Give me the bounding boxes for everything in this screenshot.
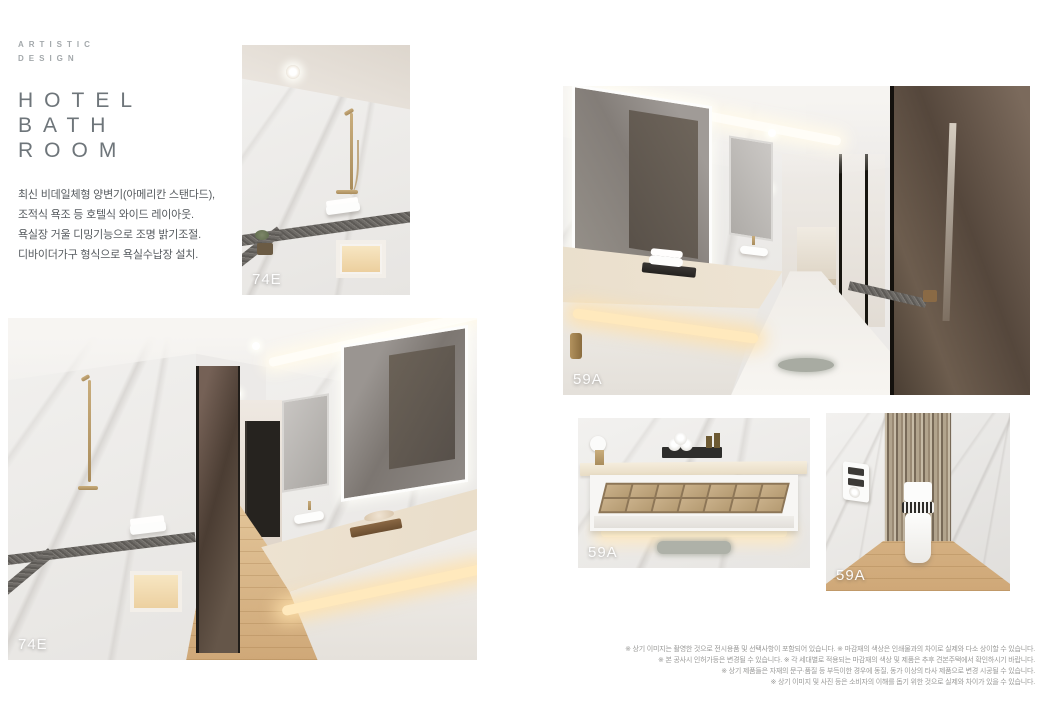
smoked-glass-door: [196, 366, 241, 653]
toilet-pattern-band: [902, 502, 933, 513]
shower-rail: [88, 380, 91, 483]
photo-label: 59A: [573, 371, 603, 388]
bath-rug: [657, 541, 731, 554]
panel-slot: [847, 467, 864, 476]
gold-vase: [570, 333, 582, 359]
bath-rug: [778, 358, 834, 372]
description-line: 욕실장 거울 디밍기능으로 조명 밝기조절.: [18, 225, 233, 245]
toilet-tank: [904, 482, 932, 502]
title-line-bath: BATH: [18, 113, 233, 138]
eyebrow-line-1: ARTISTIC: [18, 38, 233, 52]
description-line: 디바이더가구 형식으로 욕실수납장 설치.: [18, 245, 233, 265]
ceiling-spotlight: [252, 342, 260, 350]
vanity-cabinet: [590, 475, 799, 531]
wardrobe: [245, 421, 280, 537]
toilet-paper-roll: [848, 485, 859, 498]
wood-basket: [923, 290, 937, 302]
photo-label: 59A: [588, 544, 618, 561]
photo-drawer-59a: 59A: [578, 418, 810, 568]
disclaimer-line: ※ 상기 이미지는 촬영한 것으로 전시용품 및 선택사항이 포함되어 있습니다…: [625, 644, 1035, 655]
faucet: [308, 501, 311, 510]
ceiling-light: [286, 65, 300, 79]
mirror-cabinet: [282, 393, 329, 493]
rolled-towel: [674, 432, 687, 445]
eyebrow-line-2: DESIGN: [18, 52, 233, 66]
photo-bathroom-right-59a: 59A: [563, 86, 1030, 395]
smoked-glass-shower-wall: [890, 86, 1030, 395]
page-title: HOTEL BATH ROOM: [18, 88, 233, 163]
disclaimer-line: ※ 본 공사시 인허가등은 변경될 수 있습니다. ※ 각 세대별로 적용되는 …: [625, 655, 1035, 666]
panel-slot: [847, 478, 864, 487]
description-line: 조적식 욕조 등 호텔식 와이드 레이아웃.: [18, 205, 233, 225]
drawer-front: [594, 516, 794, 528]
shower-valve: [336, 190, 358, 194]
glass-door-frame: [865, 154, 868, 327]
photo-label: 74E: [18, 636, 48, 653]
photo-label: 59A: [836, 567, 866, 584]
description-text: 최신 비데일체형 양변기(아메리칸 스탠다드), 조적식 욕조 등 호텔식 와이…: [18, 185, 233, 265]
photo-bathroom-left-74e: 74E: [8, 318, 477, 660]
faucet: [752, 236, 755, 245]
disclaimer-text: ※ 상기 이미지는 촬영한 것으로 전시용품 및 선택사항이 포함되어 있습니다…: [625, 644, 1035, 688]
lamp-base: [595, 450, 604, 465]
eyebrow-text: ARTISTIC DESIGN: [18, 38, 233, 66]
countertop: [580, 461, 807, 476]
photo-label: 74E: [252, 271, 282, 288]
mirror-cabinet: [729, 135, 773, 241]
drawer-organizer: [598, 482, 789, 513]
toilet-body: [905, 513, 931, 563]
header-block: ARTISTIC DESIGN HOTEL BATH ROOM 최신 비데일체형…: [18, 38, 233, 265]
description-line: 최신 비데일체형 양변기(아메리칸 스탠다드),: [18, 185, 233, 205]
disclaimer-line: ※ 상기 제품들은 자재의 문구·품질 등 부득이한 경우에 동질, 동가 이상…: [625, 666, 1035, 677]
title-line-room: ROOM: [18, 138, 233, 163]
glass-reflection: [942, 123, 956, 321]
plant-pot: [257, 243, 273, 255]
perfume-bottle: [714, 433, 720, 448]
wall-control-panel: [843, 461, 869, 503]
shower-valve: [78, 486, 98, 490]
lit-niche: [336, 240, 386, 278]
title-line-hotel: HOTEL: [18, 88, 233, 113]
led-mirror: [341, 325, 468, 502]
photo-toilet-59a: 59A: [826, 413, 1010, 591]
disclaimer-line: ※ 상기 이미지 및 사진 등은 소비자의 이해를 돕기 위한 것으로 실제와 …: [625, 677, 1035, 688]
brochure-page: ARTISTIC DESIGN HOTEL BATH ROOM 최신 비데일체형…: [0, 0, 1040, 720]
lit-niche: [130, 571, 182, 612]
photo-shower-74e: 74E: [242, 45, 410, 295]
perfume-bottle: [706, 436, 712, 448]
